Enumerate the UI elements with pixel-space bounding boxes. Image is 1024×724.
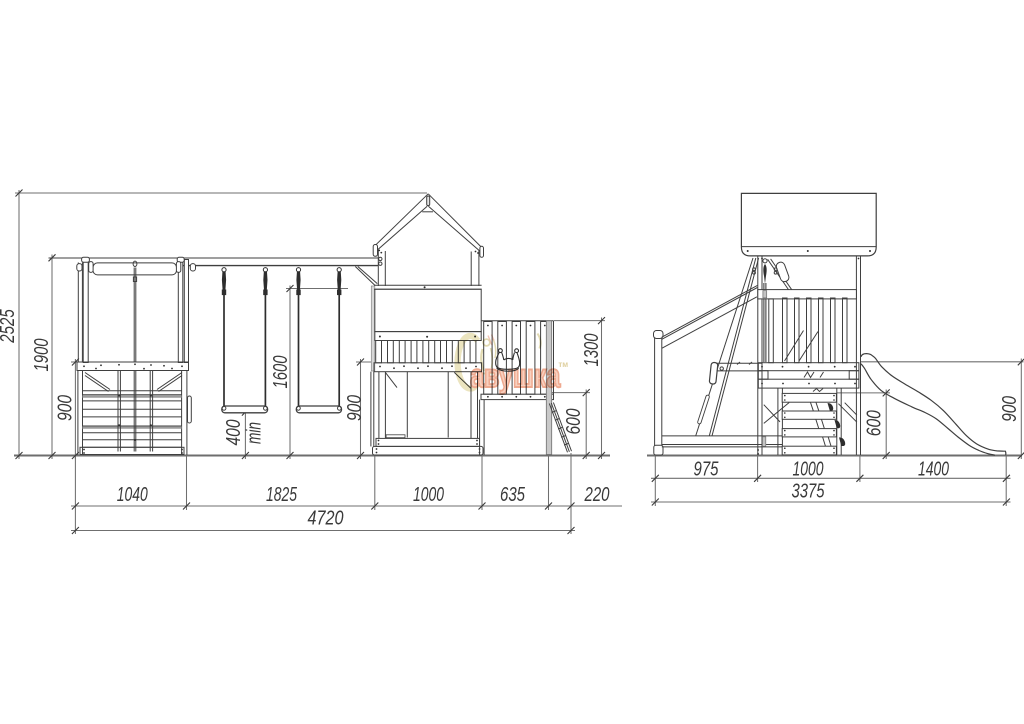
svg-text:600: 600 <box>864 410 886 436</box>
svg-text:1040: 1040 <box>117 484 148 506</box>
svg-text:min: min <box>244 422 266 444</box>
svg-text:3375: 3375 <box>792 481 826 503</box>
svg-text:400: 400 <box>223 420 245 446</box>
svg-text:900: 900 <box>999 396 1021 422</box>
svg-text:1300: 1300 <box>581 334 603 367</box>
svg-text:220: 220 <box>584 484 610 506</box>
svg-text:600: 600 <box>563 409 585 435</box>
svg-text:авушка: авушка <box>470 357 561 394</box>
svg-text:4720: 4720 <box>308 508 344 530</box>
svg-text:2525: 2525 <box>0 309 19 344</box>
svg-text:900: 900 <box>344 395 366 421</box>
svg-text:1900: 1900 <box>31 339 53 372</box>
svg-text:1825: 1825 <box>266 484 298 506</box>
svg-text:1400: 1400 <box>918 459 949 481</box>
svg-text:1600: 1600 <box>270 356 292 389</box>
svg-text:975: 975 <box>694 459 720 481</box>
svg-text:1000: 1000 <box>413 484 444 506</box>
svg-text:635: 635 <box>500 484 526 506</box>
svg-text:1000: 1000 <box>793 459 824 481</box>
svg-text:тм: тм <box>558 360 568 369</box>
svg-text:900: 900 <box>55 395 77 421</box>
